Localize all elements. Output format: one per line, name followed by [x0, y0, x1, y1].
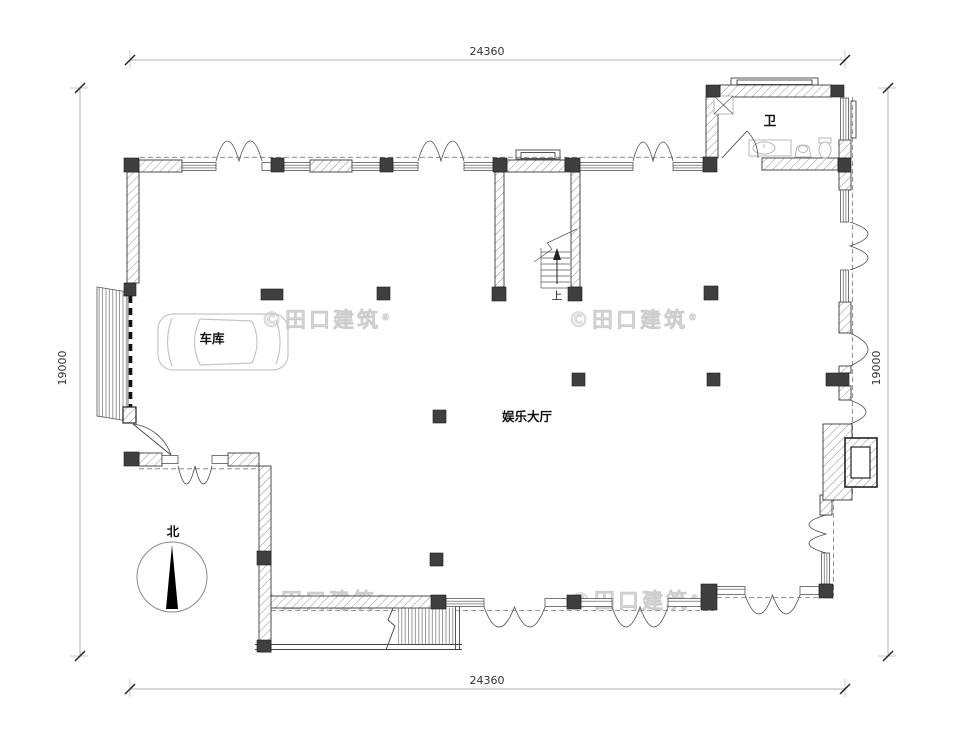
- break-line: [386, 606, 395, 650]
- exterior-landing: [516, 150, 560, 159]
- left-wall: [97, 172, 171, 455]
- top-dimension: 24360: [125, 45, 850, 68]
- left-dimension: 19000: [56, 83, 88, 661]
- column: [838, 158, 851, 172]
- column: [565, 158, 580, 172]
- casement-window-arcs: [216, 141, 673, 161]
- column: [271, 158, 284, 172]
- hall-label: 娱乐大厅: [502, 409, 553, 424]
- column: [706, 85, 720, 97]
- bathroom: 卫: [706, 78, 838, 170]
- door-post: [123, 407, 136, 423]
- watermarks: ©田口建筑® ©田口建筑® ©田口建筑® ©田口建筑®: [257, 308, 702, 613]
- floor-plan-drawing: 24360 24360 19000 19000 ©田口建筑® ©田口建筑® ©田…: [0, 0, 960, 747]
- column: [380, 158, 393, 172]
- column: [124, 283, 136, 296]
- column: [493, 158, 507, 172]
- stair-direction-arrow: [553, 248, 561, 284]
- dim-top-value: 24360: [470, 45, 505, 58]
- column: [567, 595, 581, 609]
- watermark: ©田口建筑®: [261, 308, 393, 332]
- top-wall: [139, 141, 703, 172]
- column: [124, 452, 139, 466]
- column: [701, 584, 717, 610]
- column: [831, 85, 844, 97]
- casement-window-arcs: [809, 222, 868, 553]
- floor-plan-sheet: 24360 24360 19000 19000 ©田口建筑® ©田口建筑® ©田…: [0, 0, 960, 747]
- right-dimension: 19000: [870, 83, 896, 661]
- bottom-dimension: 24360: [125, 674, 850, 697]
- shower-icon: [714, 96, 733, 114]
- garage-ramp: [97, 287, 128, 421]
- stairs: 上: [495, 172, 580, 302]
- dim-left-value: 19000: [56, 351, 69, 386]
- stairs-up-label: 上: [552, 290, 563, 302]
- column: [826, 373, 849, 386]
- chimney: [823, 424, 877, 500]
- column: [261, 289, 283, 300]
- toilet-icon: [819, 138, 831, 158]
- column: [257, 551, 271, 565]
- north-needle: [166, 545, 178, 609]
- column: [431, 595, 446, 609]
- column: [433, 410, 446, 423]
- column: [124, 158, 139, 172]
- column: [572, 373, 585, 386]
- window: [182, 163, 703, 171]
- watermark: ©田口建筑®: [568, 308, 700, 332]
- column: [377, 287, 390, 300]
- column: [707, 373, 720, 386]
- north-label: 北: [167, 524, 180, 539]
- column: [492, 287, 506, 301]
- column: [704, 286, 718, 300]
- column: [568, 287, 582, 301]
- bidet-icon: [795, 145, 811, 157]
- column: [819, 584, 833, 598]
- column: [430, 553, 443, 566]
- side-entry-door: [133, 424, 171, 455]
- garage-label: 车库: [199, 331, 225, 346]
- dim-right-value: 19000: [870, 351, 883, 386]
- dim-bottom-value: 24360: [470, 674, 505, 687]
- window: [162, 456, 228, 464]
- north-compass: 北: [137, 524, 207, 612]
- bathroom-top-window: [731, 78, 818, 85]
- bathroom-label: 卫: [764, 113, 777, 128]
- column: [257, 640, 271, 652]
- column: [703, 157, 717, 172]
